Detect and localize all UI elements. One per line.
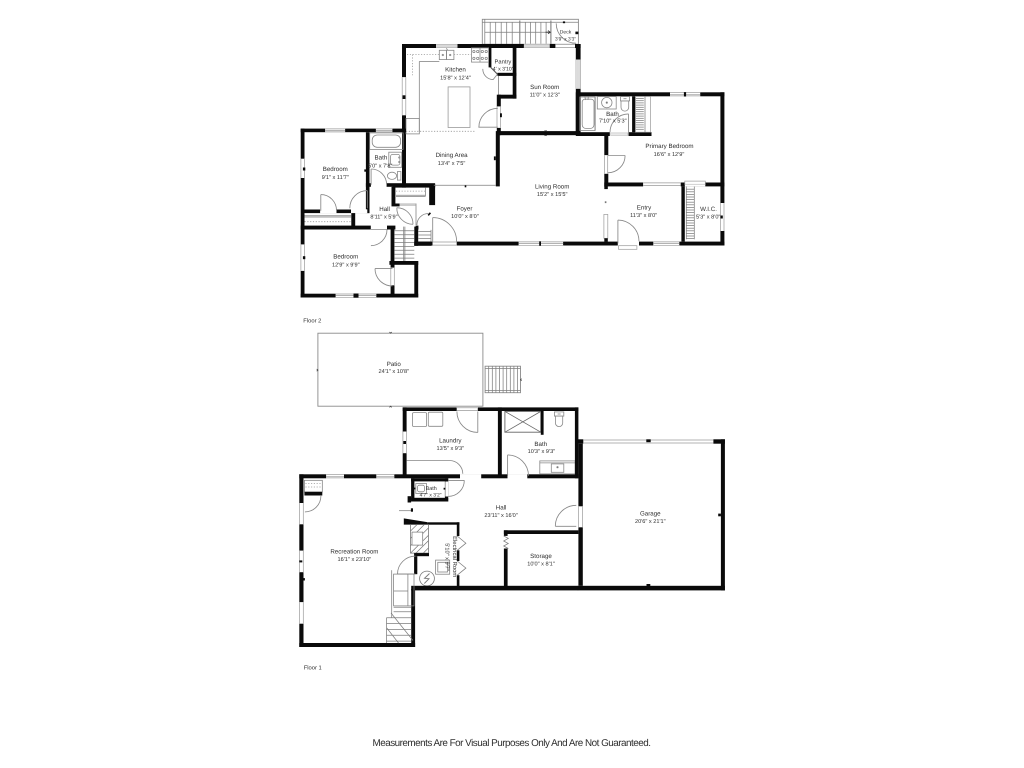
svg-text:16'6" x 12'9": 16'6" x 12'9" <box>654 152 685 158</box>
svg-text:Floor 1: Floor 1 <box>304 665 322 672</box>
svg-text:Floor 2: Floor 2 <box>303 318 321 325</box>
svg-text:5'10" x 9'7": 5'10" x 9'7" <box>444 543 450 571</box>
svg-text:Patio: Patio <box>387 361 402 368</box>
svg-text:10'0" x 8'0": 10'0" x 8'0" <box>451 214 479 220</box>
svg-text:Garage: Garage <box>640 511 661 518</box>
svg-text:Hall: Hall <box>379 206 390 213</box>
svg-text:Hall: Hall <box>496 505 507 512</box>
svg-text:13'4" x 7'5": 13'4" x 7'5" <box>438 161 466 167</box>
svg-text:24'1" x 10'8": 24'1" x 10'8" <box>378 369 409 375</box>
svg-text:8'11" x 5'9": 8'11" x 5'9" <box>370 214 397 220</box>
svg-text:Dining Area: Dining Area <box>436 152 469 159</box>
svg-text:13'5" x 9'3": 13'5" x 9'3" <box>437 446 465 452</box>
svg-text:Sun Room: Sun Room <box>530 84 559 91</box>
svg-text:3'9" x 3'3": 3'9" x 3'3" <box>555 36 576 42</box>
svg-text:Electrical Room: Electrical Room <box>451 536 458 577</box>
svg-text:4' x 3'10": 4' x 3'10" <box>493 67 514 73</box>
svg-text:Bath: Bath <box>426 486 437 492</box>
svg-text:Kitchen: Kitchen <box>445 67 466 74</box>
svg-text:9'1" x 11'7": 9'1" x 11'7" <box>322 175 349 181</box>
svg-text:23'11" x 16'0": 23'11" x 16'0" <box>484 513 517 519</box>
svg-text:15'2" x 15'5": 15'2" x 15'5" <box>537 192 568 198</box>
svg-text:Entry: Entry <box>637 205 652 212</box>
svg-text:Deck: Deck <box>560 30 572 36</box>
svg-text:11'0" x 12'3": 11'0" x 12'3" <box>530 93 560 99</box>
svg-text:W.I.C.: W.I.C. <box>700 206 717 213</box>
svg-text:Storage: Storage <box>530 553 552 560</box>
svg-text:5'3" x 8'0": 5'3" x 8'0" <box>696 214 720 220</box>
svg-text:5'0" x 7'8": 5'0" x 7'8" <box>368 164 392 170</box>
svg-text:Bath: Bath <box>534 441 547 448</box>
svg-text:11'3" x 8'0": 11'3" x 8'0" <box>630 213 657 219</box>
svg-text:Bedroom: Bedroom <box>333 254 358 261</box>
svg-text:Foyer: Foyer <box>457 205 473 212</box>
svg-text:Recreation Room: Recreation Room <box>330 549 378 556</box>
svg-text:12'9" x 9'9": 12'9" x 9'9" <box>332 262 360 268</box>
svg-text:Laundry: Laundry <box>439 437 462 444</box>
svg-text:Primary Bedroom: Primary Bedroom <box>645 143 693 150</box>
svg-text:10'0" x 8'1": 10'0" x 8'1" <box>527 562 555 568</box>
svg-text:16'1" x 23'10": 16'1" x 23'10" <box>338 557 372 563</box>
svg-text:15'8" x 12'4": 15'8" x 12'4" <box>440 75 471 81</box>
svg-text:Measurements Are For Visual Pu: Measurements Are For Visual Purposes Onl… <box>373 738 651 749</box>
svg-text:Bath: Bath <box>606 111 619 118</box>
svg-text:Bedroom: Bedroom <box>323 166 348 173</box>
svg-text:10'3" x 9'3": 10'3" x 9'3" <box>528 449 556 455</box>
svg-text:Bath: Bath <box>375 155 388 162</box>
svg-text:Living Room: Living Room <box>535 184 569 191</box>
svg-text:4'7" x 3'2": 4'7" x 3'2" <box>420 492 442 498</box>
svg-text:7'10" x 5'3": 7'10" x 5'3" <box>599 119 627 125</box>
svg-text:Pantry: Pantry <box>495 60 512 66</box>
svg-text:20'6" x 21'1": 20'6" x 21'1" <box>635 519 666 525</box>
